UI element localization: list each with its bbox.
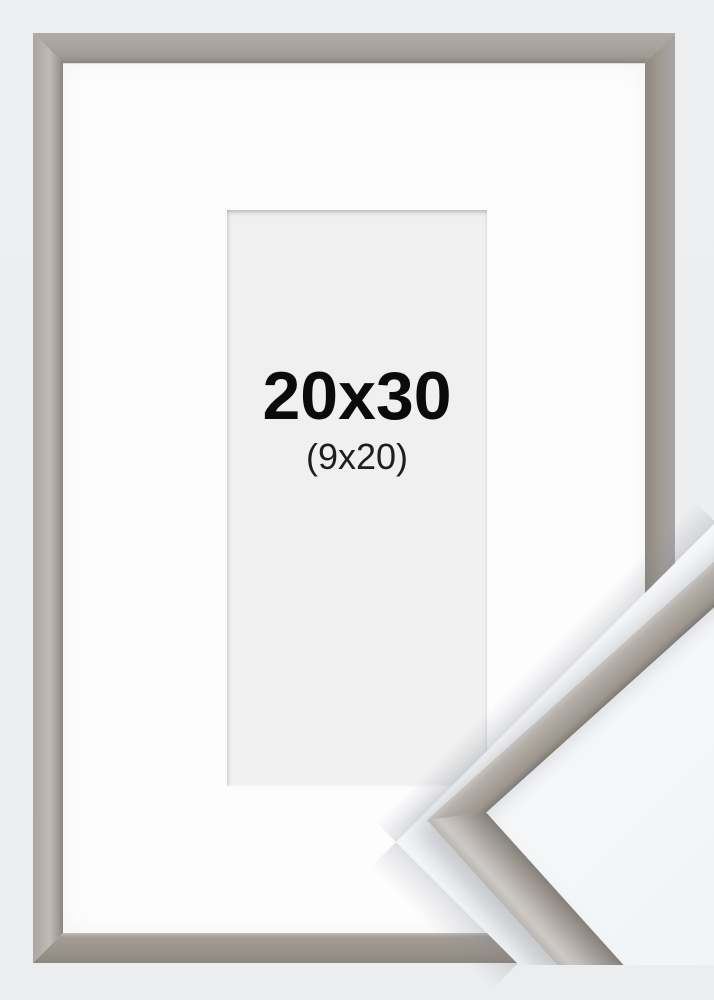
frame-corner-sample bbox=[427, 459, 714, 965]
corner-sample-region bbox=[0, 0, 714, 965]
corner-sample-arm-upper bbox=[427, 459, 714, 846]
product-image: 20x30 (9x20) bbox=[0, 0, 714, 1000]
